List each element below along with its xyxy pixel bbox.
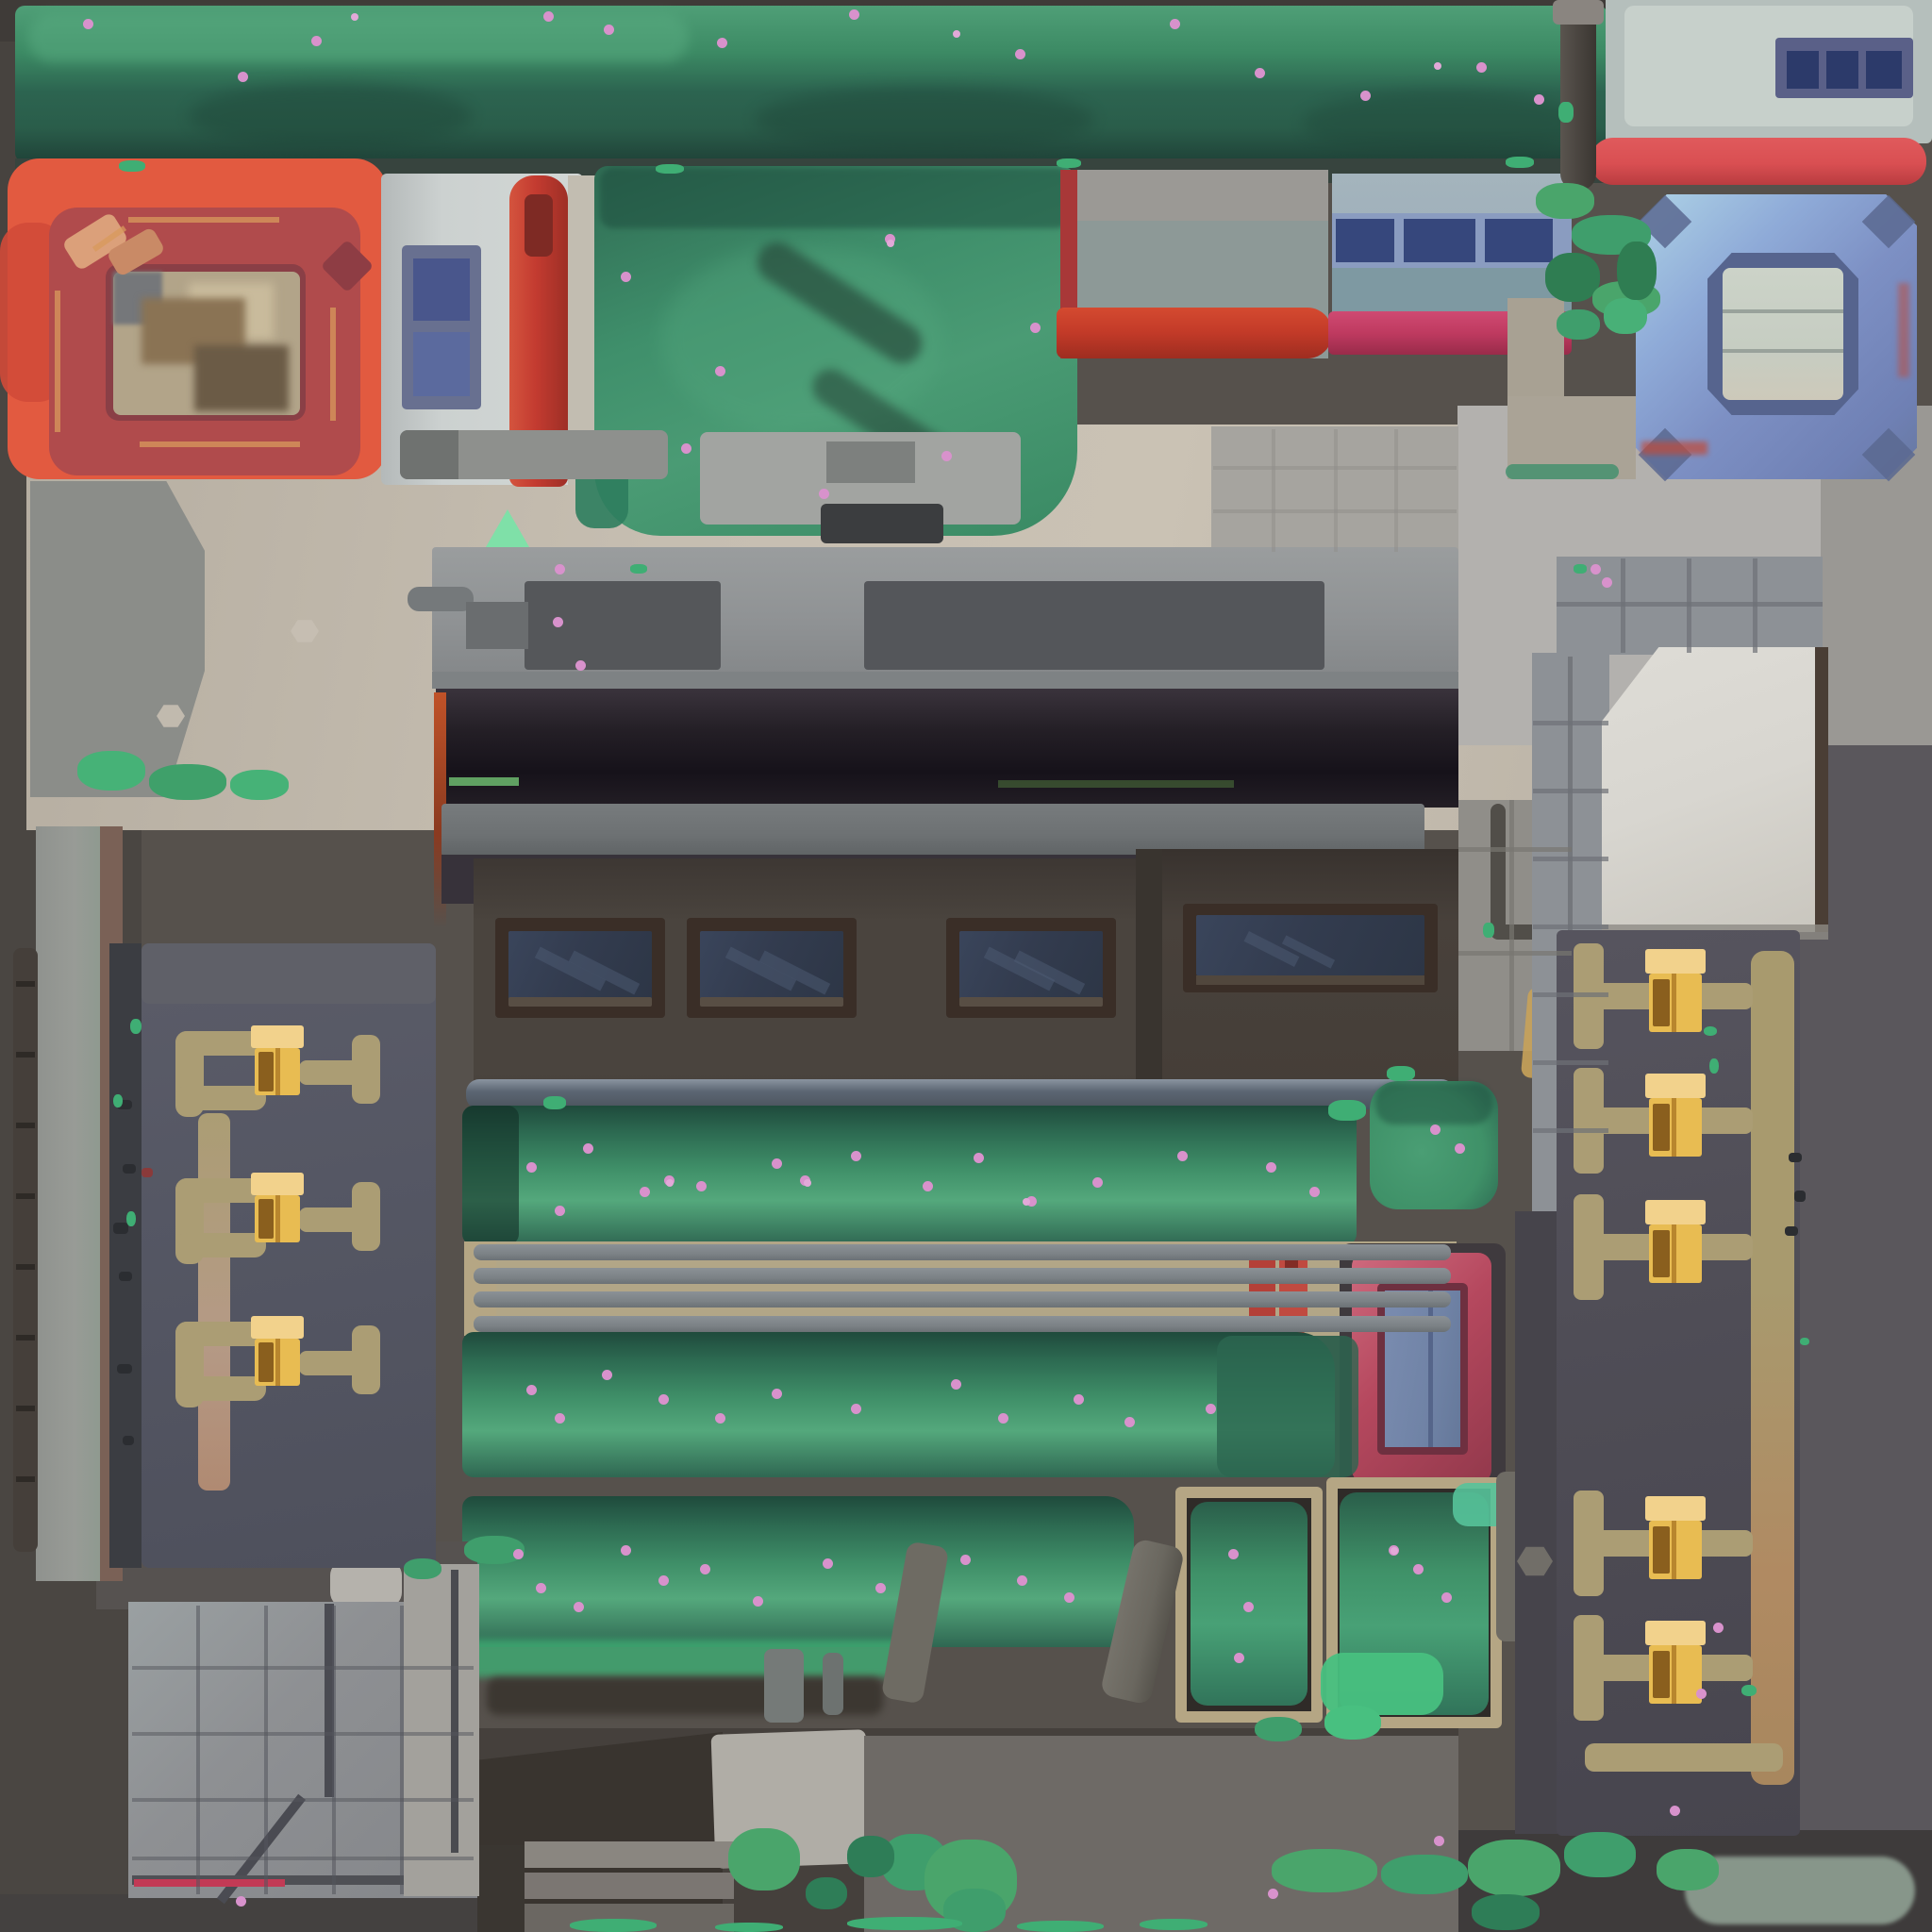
ladder-rung	[16, 981, 35, 987]
tile-grout-line	[1533, 924, 1608, 929]
top-hedge-scallop-1	[189, 83, 472, 149]
right-ornament-unit	[1653, 979, 1670, 1026]
flower-dot	[1124, 1417, 1135, 1427]
flower-dot	[875, 1583, 886, 1593]
gold-trim-line	[140, 441, 300, 447]
flower-dot-light	[1023, 1198, 1030, 1206]
grid-line-vertical	[264, 1606, 268, 1894]
flower-dot	[753, 1596, 763, 1607]
left-ornament-unit	[352, 1182, 380, 1251]
green-mark	[130, 1019, 142, 1034]
flower-dot	[951, 1379, 961, 1390]
flower-dot	[851, 1404, 861, 1414]
right-ornament-unit	[1653, 1526, 1670, 1574]
flower-dot	[83, 19, 93, 29]
foliage-blob	[77, 751, 145, 791]
flower-dot	[1476, 62, 1487, 73]
blue-skylight-glass-line-2	[1723, 349, 1843, 353]
right-ornament-unit	[1574, 1194, 1604, 1300]
flower-dot	[819, 489, 829, 499]
flower-dot	[1360, 91, 1371, 101]
dark-band-glow-2	[998, 780, 1234, 788]
central-dark-band	[436, 689, 1458, 808]
grid-line-vertical	[332, 1606, 336, 1894]
right-ornament-unit	[1653, 1230, 1670, 1277]
l-platform-green-edge	[1506, 464, 1619, 479]
slat-bar	[474, 1244, 1451, 1260]
flower-dot	[1177, 1151, 1188, 1161]
ladder-rung	[16, 1264, 35, 1270]
grid-red-line	[134, 1879, 285, 1887]
flower-dot	[1017, 1575, 1027, 1586]
foliage-blob	[570, 1919, 657, 1932]
rose-skylight-divider	[1428, 1291, 1433, 1447]
hedge-row-1	[462, 1106, 1357, 1245]
foliage-blob	[1536, 183, 1594, 219]
gray-slab-red-bar	[1057, 308, 1332, 358]
foliage-blob	[1324, 1706, 1381, 1740]
flower-dot	[696, 1181, 707, 1191]
gold-trim-line	[55, 291, 60, 432]
flower-dot	[555, 1206, 565, 1216]
flower-dot	[536, 1583, 546, 1593]
teal-accent	[1057, 158, 1081, 168]
dark-mark	[123, 1164, 136, 1174]
small-bush-fringe	[1375, 1083, 1492, 1124]
right-ornament-unit	[1653, 1104, 1670, 1151]
blue-window-pane-1	[1336, 219, 1394, 262]
planter-2-spill	[1321, 1653, 1443, 1715]
flower-dot	[823, 1558, 833, 1569]
plaza-grout-line	[1213, 466, 1457, 470]
flower-dot	[526, 1162, 537, 1173]
flower-dot	[658, 1575, 669, 1586]
flower-dot	[555, 1413, 565, 1424]
flower-dot	[1534, 94, 1544, 105]
blue-window-pane-3	[1485, 219, 1553, 262]
right-panel-bottom-bar	[1585, 1743, 1783, 1772]
foliage-blob	[847, 1917, 962, 1930]
flower-dot	[715, 366, 725, 376]
tile-grout-line	[1533, 1128, 1608, 1133]
flower-dot	[1434, 1836, 1444, 1846]
ladder-rung	[16, 1193, 35, 1199]
grid-line-horizontal	[132, 1666, 474, 1670]
flower-dot-light	[1391, 1547, 1398, 1555]
tr-window-pane-1	[1787, 51, 1819, 89]
gray-slab-top-band	[1060, 170, 1328, 221]
flower-dot	[513, 1549, 524, 1559]
gray-pole	[823, 1653, 843, 1715]
interior-furniture-2	[194, 345, 289, 411]
slat-bar	[474, 1316, 1451, 1332]
dark-mark	[1794, 1191, 1806, 1202]
blue-skylight-glass	[1723, 268, 1843, 400]
flower-dot	[998, 1413, 1008, 1424]
left-ornament-unit	[258, 1199, 274, 1239]
foliage-blob	[1272, 1849, 1377, 1892]
flower-dot	[974, 1153, 984, 1163]
white-building-window-top	[413, 258, 470, 321]
foliage-blob	[1557, 309, 1600, 340]
flower-dot	[1092, 1177, 1103, 1188]
foliage-blob	[1604, 298, 1647, 334]
left-ornament-unit	[175, 1233, 266, 1257]
flower-dot	[1696, 1689, 1707, 1699]
garage-seam	[1136, 849, 1164, 1111]
garage-window	[508, 997, 652, 1007]
ladder-rung	[16, 1335, 35, 1341]
right-ornament-unit	[1645, 1074, 1706, 1098]
flower-dot-light	[1434, 62, 1441, 70]
flower-dot	[574, 1602, 584, 1612]
flower-dot	[1015, 49, 1025, 59]
red-pole-notch	[525, 194, 553, 257]
left-ornament-unit	[352, 1325, 380, 1394]
green-mark	[113, 1094, 123, 1108]
slab-handle	[408, 587, 474, 611]
dark-mark	[1785, 1226, 1798, 1236]
teal-accent	[1387, 1066, 1415, 1081]
flower-dot	[621, 1545, 631, 1556]
flower-dot	[851, 1151, 861, 1161]
hedge-row-2	[462, 1332, 1335, 1477]
gray-pillar	[764, 1649, 804, 1723]
walkway-dark-line	[451, 1570, 458, 1853]
bottom-step-2	[525, 1873, 734, 1899]
hedge-row-2-dark-end	[1217, 1336, 1358, 1477]
flower-dot	[583, 1143, 593, 1154]
foliage-blob	[806, 1877, 847, 1909]
tile-grout-line	[1533, 789, 1608, 793]
flower-dot	[1170, 19, 1180, 29]
tile-grout-line	[1533, 721, 1608, 725]
right-ornament-unit	[1645, 1621, 1706, 1645]
foliage-blob	[1564, 1832, 1636, 1877]
left-ornament-unit	[275, 1048, 280, 1095]
right-ornament-unit	[1574, 1068, 1604, 1174]
flower-dot-light	[666, 1179, 674, 1187]
right-panel-vert-bar	[1751, 951, 1794, 1785]
bottom-step-1	[525, 1841, 734, 1868]
central-slab-inset-2	[864, 581, 1324, 670]
plaza-grout-line	[1394, 429, 1398, 552]
flower-dot	[681, 443, 691, 454]
flower-dot	[1430, 1124, 1441, 1135]
flower-dot	[960, 1555, 971, 1565]
left-ladder	[13, 948, 38, 1552]
teal-accent	[1574, 564, 1587, 574]
right-ornament-unit	[1672, 1224, 1676, 1283]
left-ornament-unit	[258, 1342, 274, 1382]
foliage-blob	[149, 764, 226, 800]
foliage-blob	[1255, 1717, 1302, 1741]
teal-accent	[1558, 102, 1574, 123]
green-mark	[1704, 1026, 1717, 1036]
left-ornament-unit	[175, 1376, 266, 1401]
right-ornament-unit	[1645, 1200, 1706, 1224]
flower-dot-light	[953, 30, 960, 38]
flower-dot	[1234, 1653, 1244, 1663]
flower-dot	[1309, 1187, 1320, 1197]
white-sheet-border	[1815, 647, 1828, 932]
grid-line-horizontal	[132, 1857, 474, 1860]
left-ornament-unit	[275, 1339, 280, 1386]
rose-skylight-glass	[1385, 1291, 1460, 1447]
plaza-grout-line	[1272, 429, 1275, 552]
foliage-blob	[1617, 241, 1657, 300]
left-panel-top-stone	[142, 943, 436, 1004]
flower-dot	[1455, 1143, 1465, 1154]
central-slab-notch	[466, 602, 528, 649]
white-sheet	[1602, 647, 1821, 932]
flower-dot	[602, 1370, 612, 1380]
flower-dot	[1206, 1404, 1216, 1414]
flower-dot	[1228, 1549, 1239, 1559]
top-right-red-bar	[1591, 138, 1926, 185]
right-ornament-unit	[1574, 1491, 1604, 1596]
red-mark	[142, 1168, 153, 1177]
game-map-canvas	[0, 0, 1932, 1932]
flower-dot	[1255, 68, 1265, 78]
top-hedge-highlight	[28, 13, 689, 62]
left-panel-strip	[109, 943, 142, 1568]
dark-mark	[117, 1364, 132, 1374]
walkway-strip	[404, 1564, 479, 1896]
plaza-walk-bar-1-notch	[400, 430, 458, 479]
flower-dot	[236, 1896, 246, 1907]
foliage-blob	[847, 1836, 894, 1877]
green-mark	[1741, 1685, 1757, 1696]
tr-window-pane-3	[1866, 51, 1902, 89]
tr-window-pane-2	[1826, 51, 1858, 89]
green-mark	[1709, 1058, 1719, 1074]
flower-dot	[1413, 1564, 1424, 1574]
teal-accent	[1483, 923, 1494, 938]
flower-dot-light	[804, 1179, 811, 1187]
green-mark	[1800, 1338, 1809, 1345]
flower-dot	[555, 564, 565, 575]
wall-pipe	[1491, 804, 1506, 936]
flower-dot	[1243, 1602, 1254, 1612]
wall-grout-line	[1458, 847, 1572, 852]
plaza-grout-line	[1334, 429, 1338, 552]
flower-dot	[1441, 1592, 1452, 1603]
central-ledge	[432, 672, 1458, 689]
flower-dot-light	[887, 240, 894, 247]
pipe-cap	[1553, 0, 1604, 25]
wall-grout-line	[1458, 951, 1572, 956]
right-ornament-unit	[1672, 974, 1676, 1032]
garage-right-window-sill	[1196, 975, 1424, 985]
plaza-grout-line	[1213, 509, 1457, 513]
blue-skylight-glint-red-2	[1898, 283, 1909, 377]
plaza-dark-slab	[821, 504, 943, 543]
tile-grout-line	[1533, 992, 1608, 997]
flower-dot	[1670, 1806, 1680, 1816]
flower-dot	[604, 25, 614, 35]
foliage-blob	[1472, 1894, 1540, 1930]
pipe-top-right	[1560, 2, 1596, 191]
ladder-rung	[16, 1052, 35, 1058]
blue-skylight-glass-line-1	[1723, 309, 1843, 313]
top-hedge-scallop-2	[755, 87, 1094, 153]
left-wall-light-strip	[36, 826, 100, 1581]
flower-dot	[575, 660, 586, 671]
hedge-row-3	[462, 1496, 1134, 1647]
foliage-blob	[1017, 1921, 1104, 1932]
left-ornament-unit	[175, 1086, 266, 1110]
flower-dot	[238, 72, 248, 82]
left-ornament-unit	[352, 1035, 380, 1104]
tile-grout-line	[1557, 602, 1823, 607]
dark-mark	[1789, 1153, 1802, 1162]
garage-window	[959, 997, 1103, 1007]
foliage-blob	[1657, 1849, 1719, 1890]
teal-accent	[1506, 157, 1534, 168]
dark-mark	[123, 1436, 134, 1445]
flower-dot	[1591, 564, 1601, 575]
foliage-blob	[1381, 1855, 1468, 1894]
flower-dot	[1713, 1623, 1724, 1633]
flower-dot	[1074, 1394, 1084, 1405]
right-ornament-unit	[1672, 1645, 1676, 1704]
white-building-window-bottom	[413, 332, 470, 396]
right-ornament-unit	[1645, 949, 1706, 974]
flower-dot	[772, 1158, 782, 1169]
foliage-blob	[404, 1558, 441, 1579]
left-ornament-unit	[258, 1052, 274, 1091]
flower-dot-light	[351, 13, 358, 21]
teal-accent	[543, 1096, 566, 1109]
gold-trim-line	[128, 217, 279, 223]
flower-dot	[553, 617, 563, 627]
right-ornament-unit	[1653, 1651, 1670, 1698]
dark-mark	[113, 1223, 128, 1234]
bottom-bin	[477, 1845, 525, 1932]
ladder-rung	[16, 1123, 35, 1128]
flower-dot	[941, 451, 952, 461]
ladder-rung	[16, 1406, 35, 1411]
teal-accent	[119, 160, 145, 172]
flower-dot	[621, 272, 631, 282]
right-ornament-unit	[1672, 1098, 1676, 1157]
dark-band-glow-1	[449, 777, 519, 786]
hedge-row-3-glow	[462, 1640, 911, 1677]
flower-dot	[311, 36, 322, 46]
pale-smear	[1685, 1857, 1915, 1924]
teal-accent	[1328, 1100, 1366, 1121]
right-ornament-unit	[1672, 1521, 1676, 1579]
flower-dot	[700, 1564, 710, 1574]
flower-dot	[1030, 323, 1041, 333]
blue-skylight-glint-red-1	[1641, 441, 1707, 455]
flower-dot	[1266, 1162, 1276, 1173]
plaza-gray-pentagon	[30, 481, 205, 797]
slat-bar	[474, 1268, 1451, 1284]
tile-grout-line	[1533, 857, 1608, 861]
grid-line-horizontal	[132, 1732, 474, 1736]
wall-grout-line	[1509, 800, 1514, 1051]
teal-accent	[656, 164, 684, 174]
flower-dot	[717, 38, 727, 48]
flower-dot	[658, 1394, 669, 1405]
big-bush-fringe	[600, 168, 1070, 228]
flower-dot	[640, 1187, 650, 1197]
foliage-blob	[728, 1828, 800, 1890]
left-panel-vert-bar	[198, 1113, 230, 1491]
gold-trim-line	[330, 308, 336, 421]
foliage-blob	[715, 1923, 783, 1932]
hedge-row-1-shadow-left	[462, 1106, 519, 1245]
grid-line-horizontal	[132, 1798, 474, 1802]
garage-right-window-glass	[1196, 915, 1424, 975]
flower-dot	[923, 1181, 933, 1191]
right-panel-left-gutter	[1515, 1211, 1558, 1834]
left-ornament-unit	[251, 1316, 304, 1339]
flower-dot	[772, 1389, 782, 1399]
teal-accent	[630, 564, 647, 574]
dark-mark	[119, 1272, 132, 1281]
flower-dot	[1268, 1889, 1278, 1899]
tile-grout-line	[1533, 1060, 1608, 1065]
left-ornament-unit	[251, 1025, 304, 1048]
garage-window	[700, 997, 843, 1007]
flower-dot	[1602, 577, 1612, 588]
left-ornament-unit	[251, 1173, 304, 1195]
flower-dot	[526, 1385, 537, 1395]
flower-dot	[849, 9, 859, 20]
foliage-blob	[1140, 1919, 1207, 1930]
flower-dot	[715, 1413, 725, 1424]
plaza-walk-step	[826, 441, 915, 483]
grid-line-vertical	[400, 1606, 404, 1894]
right-ornament-unit	[1645, 1496, 1706, 1521]
right-ornament-unit	[1574, 1615, 1604, 1721]
ladder-rung	[16, 1476, 35, 1482]
grid-line-vertical	[196, 1606, 200, 1894]
left-ornament-unit	[275, 1195, 280, 1242]
foliage-blob	[1468, 1840, 1560, 1896]
flower-dot	[1064, 1592, 1074, 1603]
flower-dot	[543, 11, 554, 22]
slat-bar	[474, 1291, 1451, 1307]
green-mark	[126, 1211, 136, 1226]
foliage-blob	[230, 770, 289, 800]
blue-window-pane-2	[1404, 219, 1475, 262]
